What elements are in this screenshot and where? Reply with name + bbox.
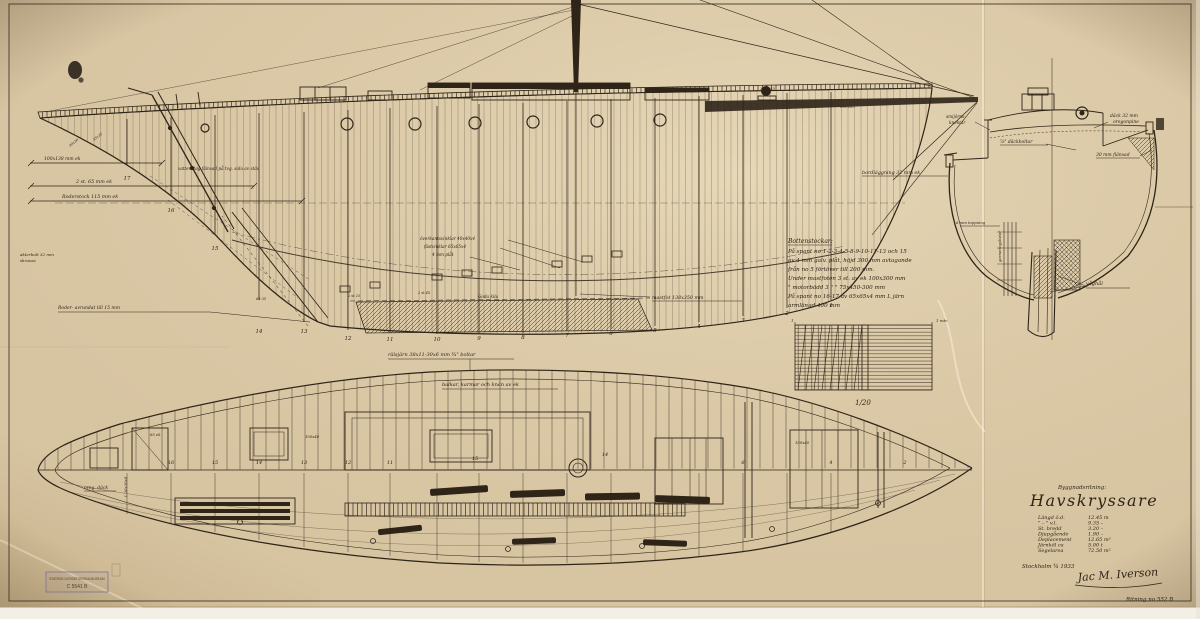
ink-stain bbox=[68, 61, 82, 79]
notes-line: av 4 mm galv. plåt, höjd 300 mm avtagand… bbox=[788, 257, 912, 264]
frame-number: 15 bbox=[472, 456, 478, 462]
profile-label: Roder- avrundat till 15 mm bbox=[57, 305, 120, 311]
scale-tick-label: 1 bbox=[791, 318, 794, 323]
frame-number: 2 bbox=[784, 311, 789, 317]
profile-label: 2 st. 65 mm ek bbox=[75, 179, 112, 185]
profile-label: 68 35 bbox=[256, 297, 267, 301]
deadwood-section bbox=[1034, 256, 1052, 298]
notes-line: från no 5 förtöver till 200 mm. bbox=[787, 266, 875, 273]
frame-number: 8 bbox=[521, 335, 525, 341]
drawing-number: Ritning no 552 B bbox=[1125, 597, 1173, 603]
frame-number: 14 bbox=[256, 460, 262, 466]
plan-label: rälsjärn 38x11-30x6 mm ¾" boltar bbox=[388, 351, 476, 358]
profile-label: fästvinklar 65x65x4 bbox=[423, 244, 466, 249]
profile-label: 260x55 bbox=[839, 104, 855, 109]
frame-number: 2 bbox=[902, 460, 906, 466]
notes-heading: Bottenstockar: bbox=[787, 238, 833, 245]
frame-number: 16 bbox=[168, 208, 175, 214]
notes-line: armlängd 400 mm bbox=[788, 303, 840, 309]
section-label: ⅞" däckboltar bbox=[1000, 139, 1033, 145]
grating-strip bbox=[345, 503, 685, 516]
stamp-line2: C 5541 B bbox=[67, 584, 89, 590]
frame-number: 14 bbox=[256, 329, 263, 335]
profile-label: skruvas bbox=[20, 258, 36, 263]
yacht-construction-drawing: 100x138 mm ek 2 st. 65 mm ek Roderstock … bbox=[0, 0, 1200, 619]
profile-label: 300x55 bbox=[760, 86, 775, 91]
frame-number: 3 bbox=[741, 318, 745, 324]
scale-ratio-label: 1/20 bbox=[855, 399, 871, 407]
profile-label: mastfot 138x350 mm bbox=[652, 295, 704, 301]
frame-number: 7 bbox=[565, 333, 569, 339]
ballast-keel bbox=[356, 299, 652, 333]
notes-line: På spant no 16-17 av 65x65x4 mm L järn bbox=[787, 293, 904, 300]
ink-stain-drop bbox=[78, 77, 83, 82]
notes-line: Under mastfoten 3 st. av ek 100x300 mm bbox=[788, 276, 905, 282]
notes-line: " motorbädd 3 " " 75x450-300 mm bbox=[788, 285, 885, 291]
section-label: 30 mm flänsad bbox=[1096, 152, 1130, 158]
frame-number: 15 bbox=[212, 460, 218, 466]
profile-label: överkantsvinklar 40x40x4 bbox=[420, 236, 475, 241]
profile-label: vattenstag flänsad på tvg. sida av stäv bbox=[178, 166, 260, 171]
plan-label: L 30x30x4 bbox=[123, 476, 128, 498]
profile-label: Goda kila bbox=[478, 294, 499, 299]
stamp-line1: STATENS SJÖHISTORISKA MUSEUM bbox=[49, 577, 105, 581]
plan-label: 65 ek bbox=[150, 432, 161, 437]
section-label: oregonpine bbox=[1113, 119, 1139, 125]
profile-label: 4 mm plåt bbox=[431, 252, 454, 257]
frame-number: 17 bbox=[124, 176, 131, 182]
frame-number: 11 bbox=[387, 337, 394, 343]
section-label: smijörns- bbox=[946, 114, 966, 119]
profile-label: bordläggning 32 mm ek bbox=[862, 170, 920, 176]
frame-number: 12 bbox=[345, 460, 351, 466]
section-label: däck 32 mm bbox=[1110, 113, 1138, 119]
frame-number: 16 bbox=[168, 460, 175, 466]
spec-value: 72.50 m² bbox=[1088, 548, 1111, 554]
profile-label: 100x138 mm ek bbox=[44, 156, 81, 162]
drawing-title: Havskryssare bbox=[1029, 491, 1158, 510]
notes-line: På spant no 1-2-3-4-5-8-9-10-11-13 och 1… bbox=[787, 248, 907, 255]
section-label: garneringslister bbox=[997, 231, 1002, 262]
profile-label: akterbult 32 mm bbox=[20, 252, 54, 257]
plan-label: 100x40 bbox=[795, 440, 810, 445]
scale-unit-label: 1 mtr. bbox=[936, 318, 948, 323]
section-label: 6 mm toppning bbox=[956, 220, 986, 225]
profile-label: Roderstock 115 mm ek bbox=[61, 194, 118, 200]
frame-number: 4 bbox=[828, 460, 832, 466]
scan-margin-right bbox=[1196, 0, 1200, 619]
frame-number: 6 bbox=[609, 331, 613, 337]
chainplate bbox=[1156, 118, 1164, 130]
frame-number: 13 bbox=[301, 460, 307, 466]
frame-number: 4 bbox=[696, 324, 701, 330]
frame-number: 11 bbox=[387, 460, 393, 466]
place-date: Stockholm ¾ 1933 bbox=[1022, 563, 1075, 570]
section-label: våghål bbox=[1086, 280, 1103, 287]
frame-number: 12 bbox=[345, 336, 352, 342]
frame-number: 9 bbox=[477, 336, 481, 342]
frame-number: 15 bbox=[212, 246, 219, 252]
section-label: knektar bbox=[949, 120, 966, 125]
plan-label: oreg. däck bbox=[84, 485, 108, 491]
frame-number: 13 bbox=[301, 329, 308, 335]
plan-label: balkar, karmar och knän av ek bbox=[442, 382, 519, 388]
spec-label: Segelarea bbox=[1038, 548, 1063, 554]
scan-margin-bottom bbox=[0, 607, 1200, 619]
profile-label: 2 st 25 bbox=[347, 294, 361, 298]
frame-number: 5 bbox=[653, 328, 657, 334]
frame-number: 10 bbox=[434, 337, 441, 343]
frame-number: 14 bbox=[602, 452, 608, 458]
plan-label: 100x40 bbox=[305, 434, 320, 439]
profile-label: 2 st 45 bbox=[417, 291, 431, 295]
